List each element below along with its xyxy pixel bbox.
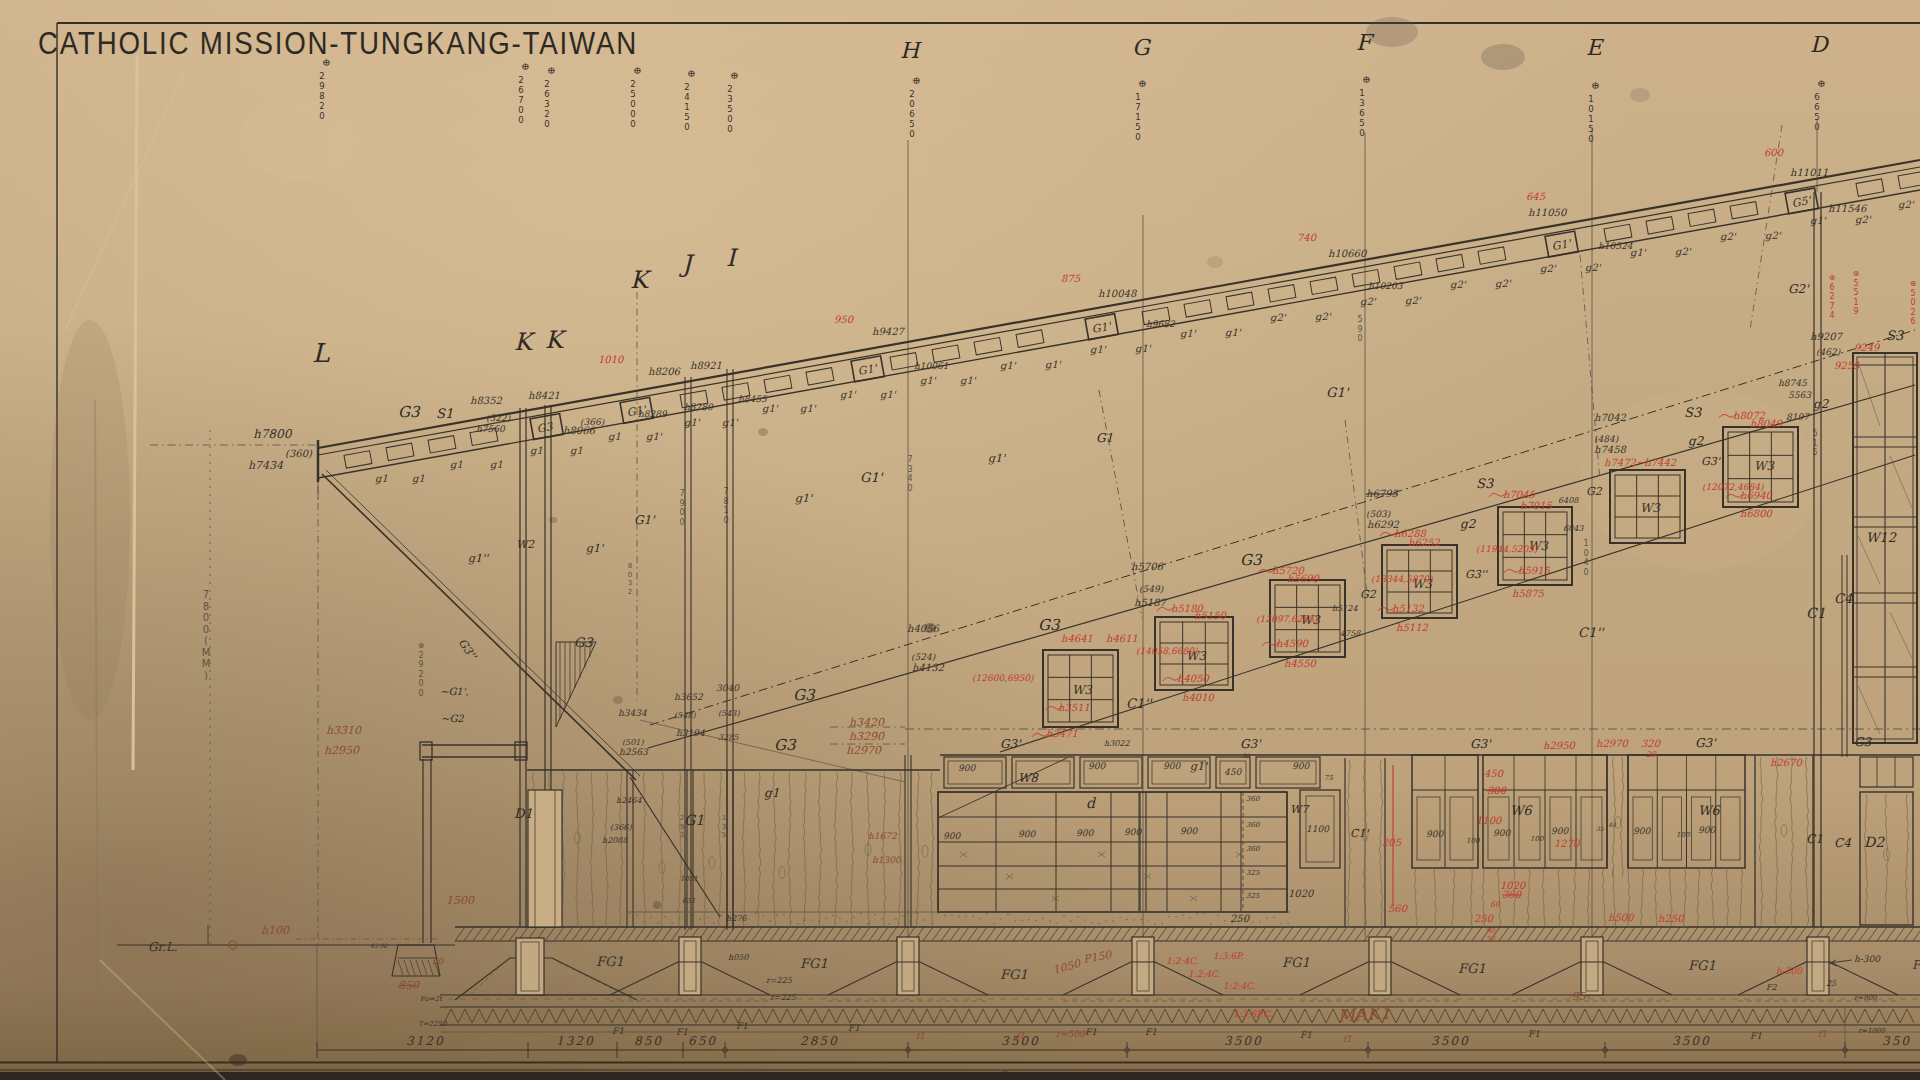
annotation-black: 100: [1466, 837, 1480, 845]
annotation-black: (503): [1366, 509, 1391, 519]
joist-label: g1': [722, 417, 739, 429]
annotation-black: F1: [848, 1023, 860, 1033]
structural-label: g1': [586, 542, 604, 555]
grid-letter-H: H: [900, 38, 922, 63]
stipple: [930, 923, 931, 924]
joist-label: g2': [1720, 231, 1737, 243]
annotation-black: 8197: [1786, 412, 1810, 422]
stipple: [713, 923, 714, 924]
footing-pedestal: [1369, 937, 1391, 995]
structural-label: ~G2: [441, 713, 464, 724]
stain: [1207, 256, 1223, 268]
stipple: [769, 920, 770, 921]
joist-label: g2': [1315, 311, 1332, 323]
stipple: [755, 913, 756, 914]
dim-value: 3500: [1431, 1034, 1470, 1048]
annotation-black: 900: [1163, 761, 1181, 771]
annotation-red: (12600,6950): [972, 673, 1034, 683]
joist-label: g2': [1405, 295, 1422, 307]
stipple: [776, 915, 777, 916]
stipple: [874, 914, 875, 915]
joist-label: g1: [490, 459, 503, 471]
stain: [1630, 88, 1650, 102]
annotation-red: 450: [1484, 768, 1505, 779]
stipple: [1014, 920, 1015, 921]
annotation-red: h250: [1658, 913, 1685, 924]
stipple: [1259, 921, 1260, 922]
grid-dim-symbol: ⊕: [687, 68, 695, 79]
annotation-black: F1: [1300, 1030, 1312, 1040]
joist-label: g1': [1045, 359, 1062, 371]
stipple: [1056, 922, 1057, 923]
structural-label: G3: [774, 736, 797, 754]
structural-label: C1'': [1578, 625, 1605, 640]
structural-label: G3: [1854, 735, 1873, 749]
annotation-black: 100: [1676, 831, 1690, 839]
annotation-black: (549): [1139, 584, 1164, 594]
annotation-black: h5124: [1332, 604, 1358, 613]
stipple: [1210, 923, 1211, 924]
annotation-black: 900: [958, 763, 976, 773]
annotation-black: h9207: [1810, 331, 1844, 342]
annotation-brown: 1500: [446, 894, 475, 907]
annotation-brown: f1: [1818, 1029, 1827, 1039]
annotation-black: h9682: [1146, 319, 1176, 329]
stipple: [1287, 922, 1288, 923]
structural-label: ~G1',: [440, 686, 469, 697]
annotation-red: 205: [1382, 837, 1402, 848]
annotation-black: h7560: [476, 424, 506, 434]
blueprint-canvas: CATHOLIC MISSION-TUNGKANG-TAIWAN LKKKJIH…: [0, 0, 1920, 1080]
stipple: [671, 923, 672, 924]
structural-label: G2: [1360, 588, 1377, 601]
annotation-black: 40: [1608, 821, 1617, 828]
joist-label: g1': [1000, 360, 1017, 372]
annotation-black: 30: [1242, 752, 1251, 759]
sheet-title: CATHOLIC MISSION-TUNGKANG-TAIWAN: [38, 26, 638, 61]
annotation-red: h5915: [1518, 565, 1551, 576]
annotation-black: h10203: [1368, 281, 1404, 291]
stain: [1366, 17, 1418, 47]
mid-dim-column: ⊕29200: [418, 641, 425, 698]
annotation-red: h6252: [1408, 537, 1441, 548]
joist-label: g1': [684, 417, 701, 429]
structural-label: W6: [1510, 803, 1533, 818]
stipple: [888, 923, 889, 924]
annotation-black: 6043: [1563, 524, 1584, 533]
structural-label: G3: [1038, 616, 1061, 634]
grid-dim-symbol: ⊕: [730, 70, 738, 81]
stipple: [629, 912, 630, 913]
annotation-black: FG1: [596, 954, 624, 969]
stipple: [1161, 923, 1162, 924]
structural-label: C4: [1834, 836, 1851, 850]
annotation-red: h5112: [1396, 622, 1429, 633]
stipple: [839, 917, 840, 918]
annotation-black: h3652: [674, 692, 704, 702]
stipple: [1175, 916, 1176, 917]
annotation-red: 1010: [598, 354, 625, 365]
annotation-black: h-300: [1854, 954, 1881, 964]
annotation-red: h5150: [1194, 610, 1228, 621]
annotation-black: 900: [1292, 761, 1310, 771]
stipple: [916, 913, 917, 914]
joist-label: g1': [646, 431, 663, 443]
annotation-black: r=1000: [1858, 1027, 1886, 1035]
structural-label: g1': [795, 492, 813, 505]
stipple: [664, 916, 665, 917]
joist-label: g1: [608, 431, 621, 443]
stipple: [1084, 919, 1085, 920]
joist-label: g1': [762, 403, 779, 415]
joist-label: g2': [1765, 230, 1782, 242]
stipple: [706, 916, 707, 917]
stipple: [1049, 921, 1050, 922]
annotation-red: h4641: [1061, 633, 1093, 644]
dim-value: 3120: [406, 1034, 445, 1048]
structural-label: C1: [1806, 605, 1826, 621]
stipple: [811, 919, 812, 920]
joist-label: g1': [1630, 247, 1647, 259]
grid-dim-column: 24150: [684, 82, 689, 132]
annotation-black: 3040: [716, 683, 740, 693]
stipple: [650, 916, 651, 917]
structural-label: G1': [1326, 385, 1350, 400]
annotation-black: 1100: [1306, 824, 1330, 834]
annotation-black: h8352: [470, 395, 503, 406]
annotation-black: (484): [1594, 434, 1619, 444]
grid-dim-column: 25000: [630, 79, 635, 129]
annotation-black: 900: [1698, 825, 1716, 835]
annotation-black: 900: [1633, 826, 1651, 836]
window-label-w3: W3: [1754, 459, 1775, 473]
joist-label: g1': [840, 389, 857, 401]
joist-label: g1': [960, 375, 977, 387]
structural-label: W12: [1866, 530, 1897, 545]
annotation-red: 320: [1641, 738, 1662, 749]
structural-label: g2: [1688, 434, 1705, 448]
annotation-red: h7045: [1503, 489, 1536, 500]
annotation-red: 645: [1526, 191, 1546, 202]
annotation-black: 4758: [1340, 629, 1361, 638]
stipple: [1196, 913, 1197, 914]
annotation-red: 90: [1486, 927, 1495, 935]
stain: [999, 1071, 1011, 1079]
annotation-black: h7042: [1594, 412, 1627, 423]
annotation-black: (462): [1816, 347, 1841, 357]
structural-label: G3'': [1701, 455, 1724, 468]
grid-dim-symbol: ⊕: [521, 61, 529, 72]
annotation-red: 30: [1486, 935, 1495, 943]
annotation-black: h8921: [690, 360, 722, 371]
annotation-black: 450: [1224, 767, 1242, 777]
annotation-red: h5875: [1512, 588, 1545, 599]
stipple: [979, 918, 980, 919]
grid-dim-column: 17150: [1135, 92, 1140, 142]
structural-label: g1': [988, 452, 1006, 465]
annotation-red: (11944,5205): [1476, 544, 1538, 554]
annotation-brown: h100: [261, 924, 290, 937]
stipple: [685, 916, 686, 917]
stipple: [1133, 919, 1134, 920]
grid-dim-column: 20650: [909, 89, 914, 139]
structural-label: G3: [398, 403, 421, 421]
annotation-black: h7434: [248, 459, 284, 472]
stain: [1481, 44, 1525, 70]
structural-label: G1': [634, 513, 656, 527]
annotation-red: h4550: [1284, 658, 1318, 669]
joist-label: g2': [1450, 279, 1467, 291]
stipple: [790, 921, 791, 922]
annotation-red: 560: [1388, 903, 1409, 914]
stipple: [783, 914, 784, 915]
grid-dim-symbol: ⊕: [912, 75, 920, 86]
dim-value: 650: [688, 1034, 717, 1048]
footing-pedestal: [897, 937, 919, 995]
annotation-red: (12097,6265): [1256, 614, 1318, 624]
grid-dim-column: 13650: [1359, 88, 1364, 138]
structural-label: G3: [574, 635, 594, 650]
annotation-brown: -95-: [1568, 990, 1591, 1003]
stipple: [1203, 912, 1204, 913]
annotation-black: 3285: [718, 733, 739, 742]
annotation-brown: h3310: [326, 724, 362, 737]
stipple: [909, 920, 910, 921]
joist-label: g1: [530, 445, 543, 457]
annotation-black: 1051: [680, 875, 698, 883]
annotation-black: 35: [1596, 825, 1605, 832]
structural-label: g1'': [468, 552, 489, 565]
annotation-black: 651: [682, 897, 695, 905]
structural-label: G3': [1470, 737, 1492, 751]
stipple: [1098, 923, 1099, 924]
annotation-black: 900: [1493, 828, 1511, 838]
dim-value: 2850: [800, 1034, 839, 1048]
grid-dim-symbol: ⊕: [1817, 78, 1825, 89]
annotation-black: 1020: [1288, 888, 1315, 899]
annotation-black: 900: [1018, 829, 1036, 839]
annotation-black: 900: [1426, 829, 1444, 839]
structural-label: g1: [764, 786, 779, 800]
annotation-red: h5132: [1392, 603, 1425, 614]
mid-dim-column: 8032: [628, 562, 632, 596]
annotation-red: 250: [1474, 913, 1495, 924]
stipple: [895, 919, 896, 920]
joist-label: g1: [412, 473, 425, 485]
stipple: [1007, 914, 1008, 915]
joist-label: g1: [450, 459, 463, 471]
annotation-black: 5563: [1788, 390, 1812, 400]
stipple: [1252, 921, 1253, 922]
annotation-black: h3022: [1104, 739, 1130, 748]
annotation-red: h6940: [1740, 490, 1774, 501]
stipple: [1042, 918, 1043, 919]
annotation-black: h10048: [1098, 288, 1138, 299]
stipple: [1217, 915, 1218, 916]
annotation-red: 600: [1764, 147, 1785, 158]
structural-label: S3: [1684, 405, 1703, 420]
joist-label: g1': [1180, 328, 1197, 340]
structural-label: S3: [1476, 476, 1495, 491]
annotation-black: 360: [1246, 845, 1260, 853]
stipple: [881, 918, 882, 919]
joist-label: g1': [880, 389, 897, 401]
stipple: [1077, 916, 1078, 917]
annotation-red: h7472~h7442: [1604, 457, 1677, 468]
grid-dim-column: 26700: [518, 75, 523, 125]
annotation-brown: h3420: [849, 716, 885, 729]
stipple: [657, 922, 658, 923]
stipple: [986, 913, 987, 914]
annotation-black: 900: [1076, 828, 1094, 838]
annotation-black: h11546: [1828, 203, 1868, 214]
stipple: [818, 920, 819, 921]
annotation-black: 100: [1530, 835, 1544, 843]
joist-label: g1: [570, 445, 583, 457]
annotation-red: (13344,5870): [1371, 574, 1433, 584]
annotation-red: 1100: [1476, 815, 1503, 826]
annotation-black: FG1: [1282, 955, 1310, 970]
annotation-brown: h3290: [849, 730, 885, 743]
annotation-black: 250: [1230, 913, 1251, 924]
grid-dim-column: 29820: [319, 71, 324, 121]
stipple: [1063, 915, 1064, 916]
stipple: [1000, 918, 1001, 919]
structural-label: D2: [1864, 834, 1885, 850]
annotation-black: h7458: [1594, 444, 1628, 455]
grid-letter-L: L: [312, 338, 330, 368]
stipple: [1273, 917, 1274, 918]
joist-label: g1': [920, 375, 937, 387]
annotation-red: h2950: [1543, 740, 1577, 751]
annotation-black: h2088: [602, 836, 628, 845]
annotation-brown: r=500: [1056, 1029, 1086, 1039]
annotation-black: h3434: [618, 708, 647, 718]
structural-label: g2: [1813, 397, 1830, 411]
annotation-red: 1:2:4C.: [1223, 981, 1256, 991]
stipple: [727, 923, 728, 924]
stipple: [853, 916, 854, 917]
stipple: [678, 916, 679, 917]
structural-label: G3'': [1465, 568, 1488, 581]
annotation-black: (322): [486, 413, 511, 423]
joist-label: g2': [1675, 246, 1692, 258]
stain: [613, 696, 623, 704]
stain: [549, 517, 557, 523]
joist-label: g1': [800, 403, 817, 415]
annotation-brown: 50: [432, 956, 445, 966]
joist-label: g2': [1585, 262, 1602, 274]
structural-label: S3: [1886, 328, 1905, 343]
annotation-black: 360: [1246, 821, 1260, 829]
annotation-black: (501): [622, 738, 644, 747]
annotation-black: h11011: [1790, 167, 1828, 178]
structural-label: G3': [1000, 737, 1022, 751]
annotation-black: F: [1912, 958, 1920, 972]
stipple: [1035, 920, 1036, 921]
annotation-brown: f1: [1343, 1034, 1352, 1044]
annotation-red: h2670: [1770, 757, 1804, 768]
annotation-black: (524): [911, 652, 936, 662]
mid-dim-column: 1040: [1583, 539, 1588, 577]
stipple: [993, 923, 994, 924]
footing-pedestal: [679, 937, 701, 995]
annotation-black: h8455: [738, 394, 768, 404]
structural-label: G2': [1788, 282, 1810, 296]
stipple: [1224, 920, 1225, 921]
annotation-black: (366): [610, 823, 632, 832]
annotation-black: (548): [674, 711, 696, 720]
grid-dim-symbol: ⊕: [322, 57, 330, 68]
annotation-red: h3471: [1046, 728, 1078, 739]
dim-value: 3500: [1672, 1034, 1711, 1048]
annotation-black: F1: [612, 1026, 624, 1036]
stipple: [1021, 919, 1022, 920]
annotation-black: h8421: [528, 390, 560, 401]
structural-label: W2: [516, 538, 535, 551]
annotation-red: 1:2:4C.: [1188, 969, 1221, 979]
annotation-black: h8066: [563, 425, 597, 436]
annotation-black: 900: [1088, 761, 1106, 771]
red-dim-column: ⊕5519: [1853, 269, 1860, 316]
stipple: [825, 918, 826, 919]
annotation-red: 1270: [1554, 838, 1581, 849]
window-label-w3: W3: [1072, 683, 1093, 697]
annotation-black: r=225: [770, 993, 797, 1002]
stipple: [748, 918, 749, 919]
stipple: [1168, 916, 1169, 917]
annotation-red: h4611: [1106, 633, 1138, 644]
structural-label: C1: [1806, 832, 1823, 846]
annotation-black: FG1: [1458, 961, 1486, 976]
annotation-black: 45 90: [370, 942, 388, 949]
annotation-brown: 850: [398, 979, 420, 992]
stipple: [692, 914, 693, 915]
stipple: [1070, 921, 1071, 922]
annotation-black: F1: [736, 1021, 748, 1031]
annotation-black: (360): [285, 448, 313, 459]
structural-label: G1: [1096, 431, 1113, 445]
stipple: [972, 916, 973, 917]
annotation-black: 900: [1124, 827, 1142, 837]
annotation-black: h8280: [684, 402, 714, 412]
grid-dim-symbol: ⊕: [1138, 78, 1146, 89]
annotation-red: 300: [1487, 785, 1508, 796]
stipple: [762, 915, 763, 916]
structural-label: g2: [1460, 517, 1477, 531]
stipple: [720, 915, 721, 916]
stipple: [1140, 919, 1141, 920]
annotation-black: FG1: [1000, 967, 1028, 982]
annotation-red: 9249: [1854, 342, 1881, 353]
stipple: [846, 921, 847, 922]
annotation-black: h10524: [1598, 241, 1633, 251]
annotation-black: h5706: [1131, 561, 1165, 572]
stipple: [804, 919, 805, 920]
structural-label: C1'': [1126, 696, 1153, 711]
annotation-red: (14058,6680): [1136, 646, 1198, 656]
stipple: [1091, 922, 1092, 923]
annotation-black: 900: [1551, 826, 1569, 836]
annotation-brown: h1300: [872, 855, 902, 865]
annotation-black: h4056: [907, 623, 941, 634]
red-dim-column: ⊕6274: [1829, 273, 1836, 320]
mid-dim-column: 7900: [679, 489, 684, 527]
joist-label: g2': [1360, 296, 1377, 308]
annotation-black: 360: [1246, 795, 1260, 803]
stipple: [923, 919, 924, 920]
structural-label: W7: [1290, 803, 1310, 816]
